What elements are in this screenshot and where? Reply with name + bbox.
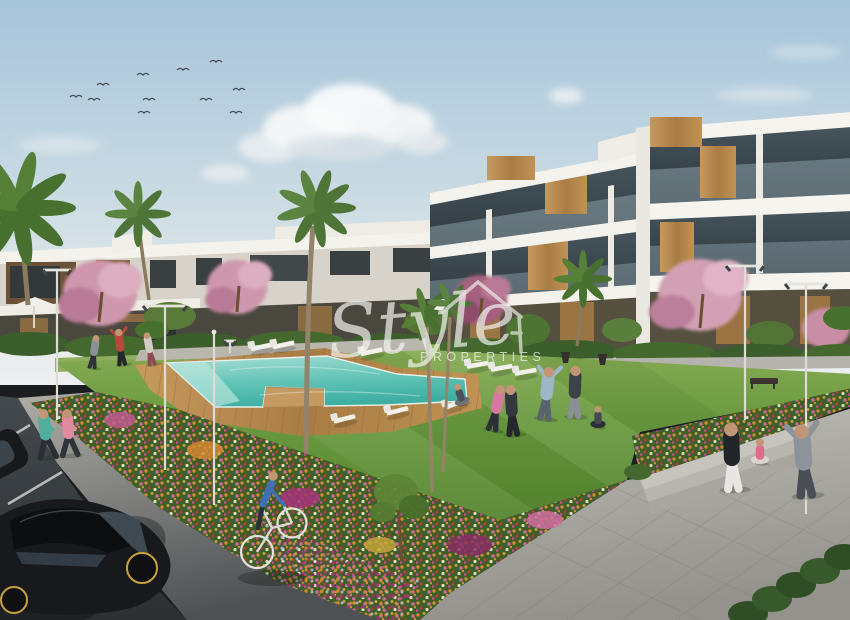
step-side-bush <box>624 464 652 480</box>
park-bench <box>750 378 778 384</box>
block-junction-column <box>636 126 650 356</box>
roof-wood-box <box>487 156 535 180</box>
car-wheel-front <box>127 553 157 583</box>
scene-canvas: Style PROPERTIES <box>0 0 850 620</box>
window-4 <box>330 251 370 275</box>
bush <box>602 318 642 342</box>
pool-jetty <box>263 387 324 407</box>
cyclist-head <box>268 471 278 481</box>
property-render-image: Style PROPERTIES <box>0 0 850 620</box>
bush <box>746 321 794 347</box>
watermark-subtitle: PROPERTIES <box>420 350 545 364</box>
car-wheel-rear <box>1 587 27 613</box>
window-2 <box>150 260 176 288</box>
mullion <box>608 185 614 290</box>
roof-wood-box <box>650 117 702 147</box>
window-5 <box>393 248 435 272</box>
agency-watermark: Style PROPERTIES <box>323 274 545 376</box>
parasol-pole <box>33 306 35 328</box>
wood-panel <box>700 146 736 198</box>
